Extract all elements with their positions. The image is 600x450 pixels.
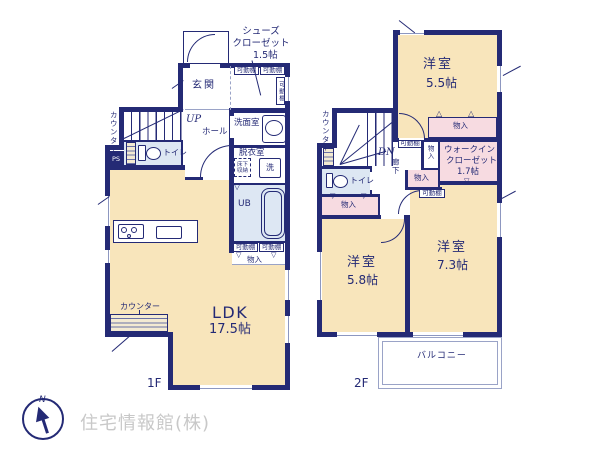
floor1-label: 1F xyxy=(147,377,162,390)
ldk-name-label: LDK xyxy=(212,304,248,322)
storage-a-door-marker: ▽ xyxy=(361,193,366,200)
floorplan-canvas: 可動棚 可動棚 可動棚 床下 収納 洗 ▽ 可動棚 可動棚 ▽ ▽ 物入 トイレ… xyxy=(0,0,600,450)
kitchen-sink xyxy=(156,226,182,239)
balcony xyxy=(378,337,502,389)
entrance-label: 玄関 xyxy=(192,80,216,91)
window xyxy=(337,332,377,337)
movable-shelf-box-2f: 可動棚 xyxy=(419,189,445,198)
wall xyxy=(405,215,410,332)
wall xyxy=(393,30,398,142)
wall xyxy=(105,332,173,337)
wall-tick xyxy=(503,66,521,76)
ldk-size-label: 17.5帖 xyxy=(209,323,251,337)
washer-label: 洗 xyxy=(266,164,274,173)
compass-needle xyxy=(30,404,56,438)
wall xyxy=(229,108,290,113)
up-label: UP xyxy=(186,114,201,125)
entrance-step-line xyxy=(185,109,229,110)
storage-a-door-marker: ▽ xyxy=(330,193,335,200)
toilet-tank-2f xyxy=(326,173,333,188)
stairs-1f xyxy=(124,112,183,140)
bath-door-marker: ▽ xyxy=(234,183,240,191)
pipe-space-label: PS xyxy=(112,156,120,163)
counter-label-1f: カウンター xyxy=(109,111,117,147)
balcony-label: バルコニー xyxy=(417,352,467,362)
counter-label-ldk: カウンター xyxy=(120,303,160,312)
window xyxy=(497,203,502,237)
movable-shelf-label: 可動棚 xyxy=(263,67,283,74)
wall xyxy=(178,63,183,112)
washroom-door-opening xyxy=(230,116,234,138)
toilet-counter-1f xyxy=(126,142,136,165)
wall xyxy=(105,145,110,337)
underfloor-storage-label-2: 収納 xyxy=(235,168,250,174)
wall xyxy=(438,140,441,187)
stove-burner xyxy=(127,234,131,238)
window xyxy=(285,270,290,300)
movable-shelf-label: 可動棚 xyxy=(236,244,256,251)
wall xyxy=(378,194,381,215)
stairs-2f-treads xyxy=(360,113,393,166)
wall xyxy=(319,194,380,197)
ldk-counter xyxy=(110,314,168,332)
movable-shelf-label: 可動棚 xyxy=(400,140,420,147)
wall xyxy=(317,143,322,337)
dn-label: DN xyxy=(378,147,395,158)
corner-tick xyxy=(112,335,131,352)
washroom-label: 洗面室 xyxy=(234,119,260,128)
movable-shelf-box: 可動棚 xyxy=(260,66,285,75)
bedroom58-name: 洋室 xyxy=(347,256,377,270)
floor2-label: 2F xyxy=(354,377,369,390)
dressing-room-label: 脱衣室 xyxy=(239,149,265,158)
hall-ldk-door-arc xyxy=(200,145,232,177)
bedroom73-size: 7.3帖 xyxy=(437,259,468,272)
storage-b-door-marker: △ xyxy=(436,110,442,118)
storage-d-label: 物入 xyxy=(414,174,429,182)
window xyxy=(105,250,110,263)
underfloor-storage-box: 床下 収納 xyxy=(234,158,251,177)
window xyxy=(285,316,290,343)
wall xyxy=(421,168,440,170)
toilet-label-1f: トイレ xyxy=(163,149,187,158)
hall-label: ホール xyxy=(202,128,228,137)
shoes-closet-name-1: シューズ xyxy=(232,27,290,37)
movable-shelf-box-2f: 可動棚 xyxy=(398,140,422,149)
sink-bowl xyxy=(265,120,283,136)
wall xyxy=(322,166,372,169)
wic-door-marker: ▽ xyxy=(464,178,469,185)
window xyxy=(317,252,322,300)
wic-name-1: ウォークイン xyxy=(444,146,495,155)
closet-door-marker: ▽ xyxy=(236,252,241,259)
ldk-room-bottom xyxy=(173,332,232,385)
stove-burner xyxy=(121,227,127,233)
movable-shelf-label: 可動棚 xyxy=(422,190,442,197)
compass-needle-tail xyxy=(41,418,48,434)
movable-shelf-box-vertical: 可動棚 xyxy=(276,77,285,105)
window xyxy=(200,385,252,390)
toilet-bowl-1f xyxy=(146,147,161,160)
wic-size: 1.7帖 xyxy=(457,168,479,177)
balcony-inner-line xyxy=(382,341,498,385)
shoes-closet-name-2: クローゼット xyxy=(230,39,292,49)
toilet-label-2f: トイレ xyxy=(350,177,374,186)
washing-machine: 洗 xyxy=(259,158,281,178)
window xyxy=(497,66,502,92)
bedroom55-size: 5.5帖 xyxy=(426,77,457,90)
entrance-closet-divider xyxy=(230,66,231,110)
front-door-opening xyxy=(190,64,220,68)
shoes-closet-size: 1.5帖 xyxy=(253,51,278,61)
storage-b-door-marker: △ xyxy=(468,110,474,118)
bedroom58-size: 5.8帖 xyxy=(347,274,378,287)
wic-name-2: クローゼット xyxy=(446,157,497,166)
unit-bath-label: UB xyxy=(238,200,251,210)
compass: N xyxy=(22,398,64,440)
stove-burner xyxy=(131,227,137,233)
window xyxy=(105,196,110,226)
wall xyxy=(168,332,173,390)
storage-a-label: 物入 xyxy=(341,201,356,209)
toilet-tank-1f xyxy=(138,145,146,161)
watermark: 住宅情報館(株) xyxy=(80,414,210,434)
bedroom73-name: 洋室 xyxy=(437,241,467,255)
counter-label-2f: カウンター xyxy=(321,110,329,146)
toilet-bowl-2f xyxy=(333,175,348,188)
storage-c-label: 物入 xyxy=(426,145,433,167)
bedroom55-name: 洋室 xyxy=(423,58,453,72)
wall xyxy=(185,177,203,180)
closet-door-marker: ▽ xyxy=(271,252,276,259)
movable-shelf-label: 可動棚 xyxy=(277,81,284,102)
bathtub-inner xyxy=(264,191,282,236)
window xyxy=(285,77,290,101)
storage-label-1f: 物入 xyxy=(247,256,262,264)
movable-shelf-label: 可動棚 xyxy=(262,244,282,251)
corridor-label: 廊下 xyxy=(391,158,399,180)
storage-b-label: 物入 xyxy=(453,122,468,130)
